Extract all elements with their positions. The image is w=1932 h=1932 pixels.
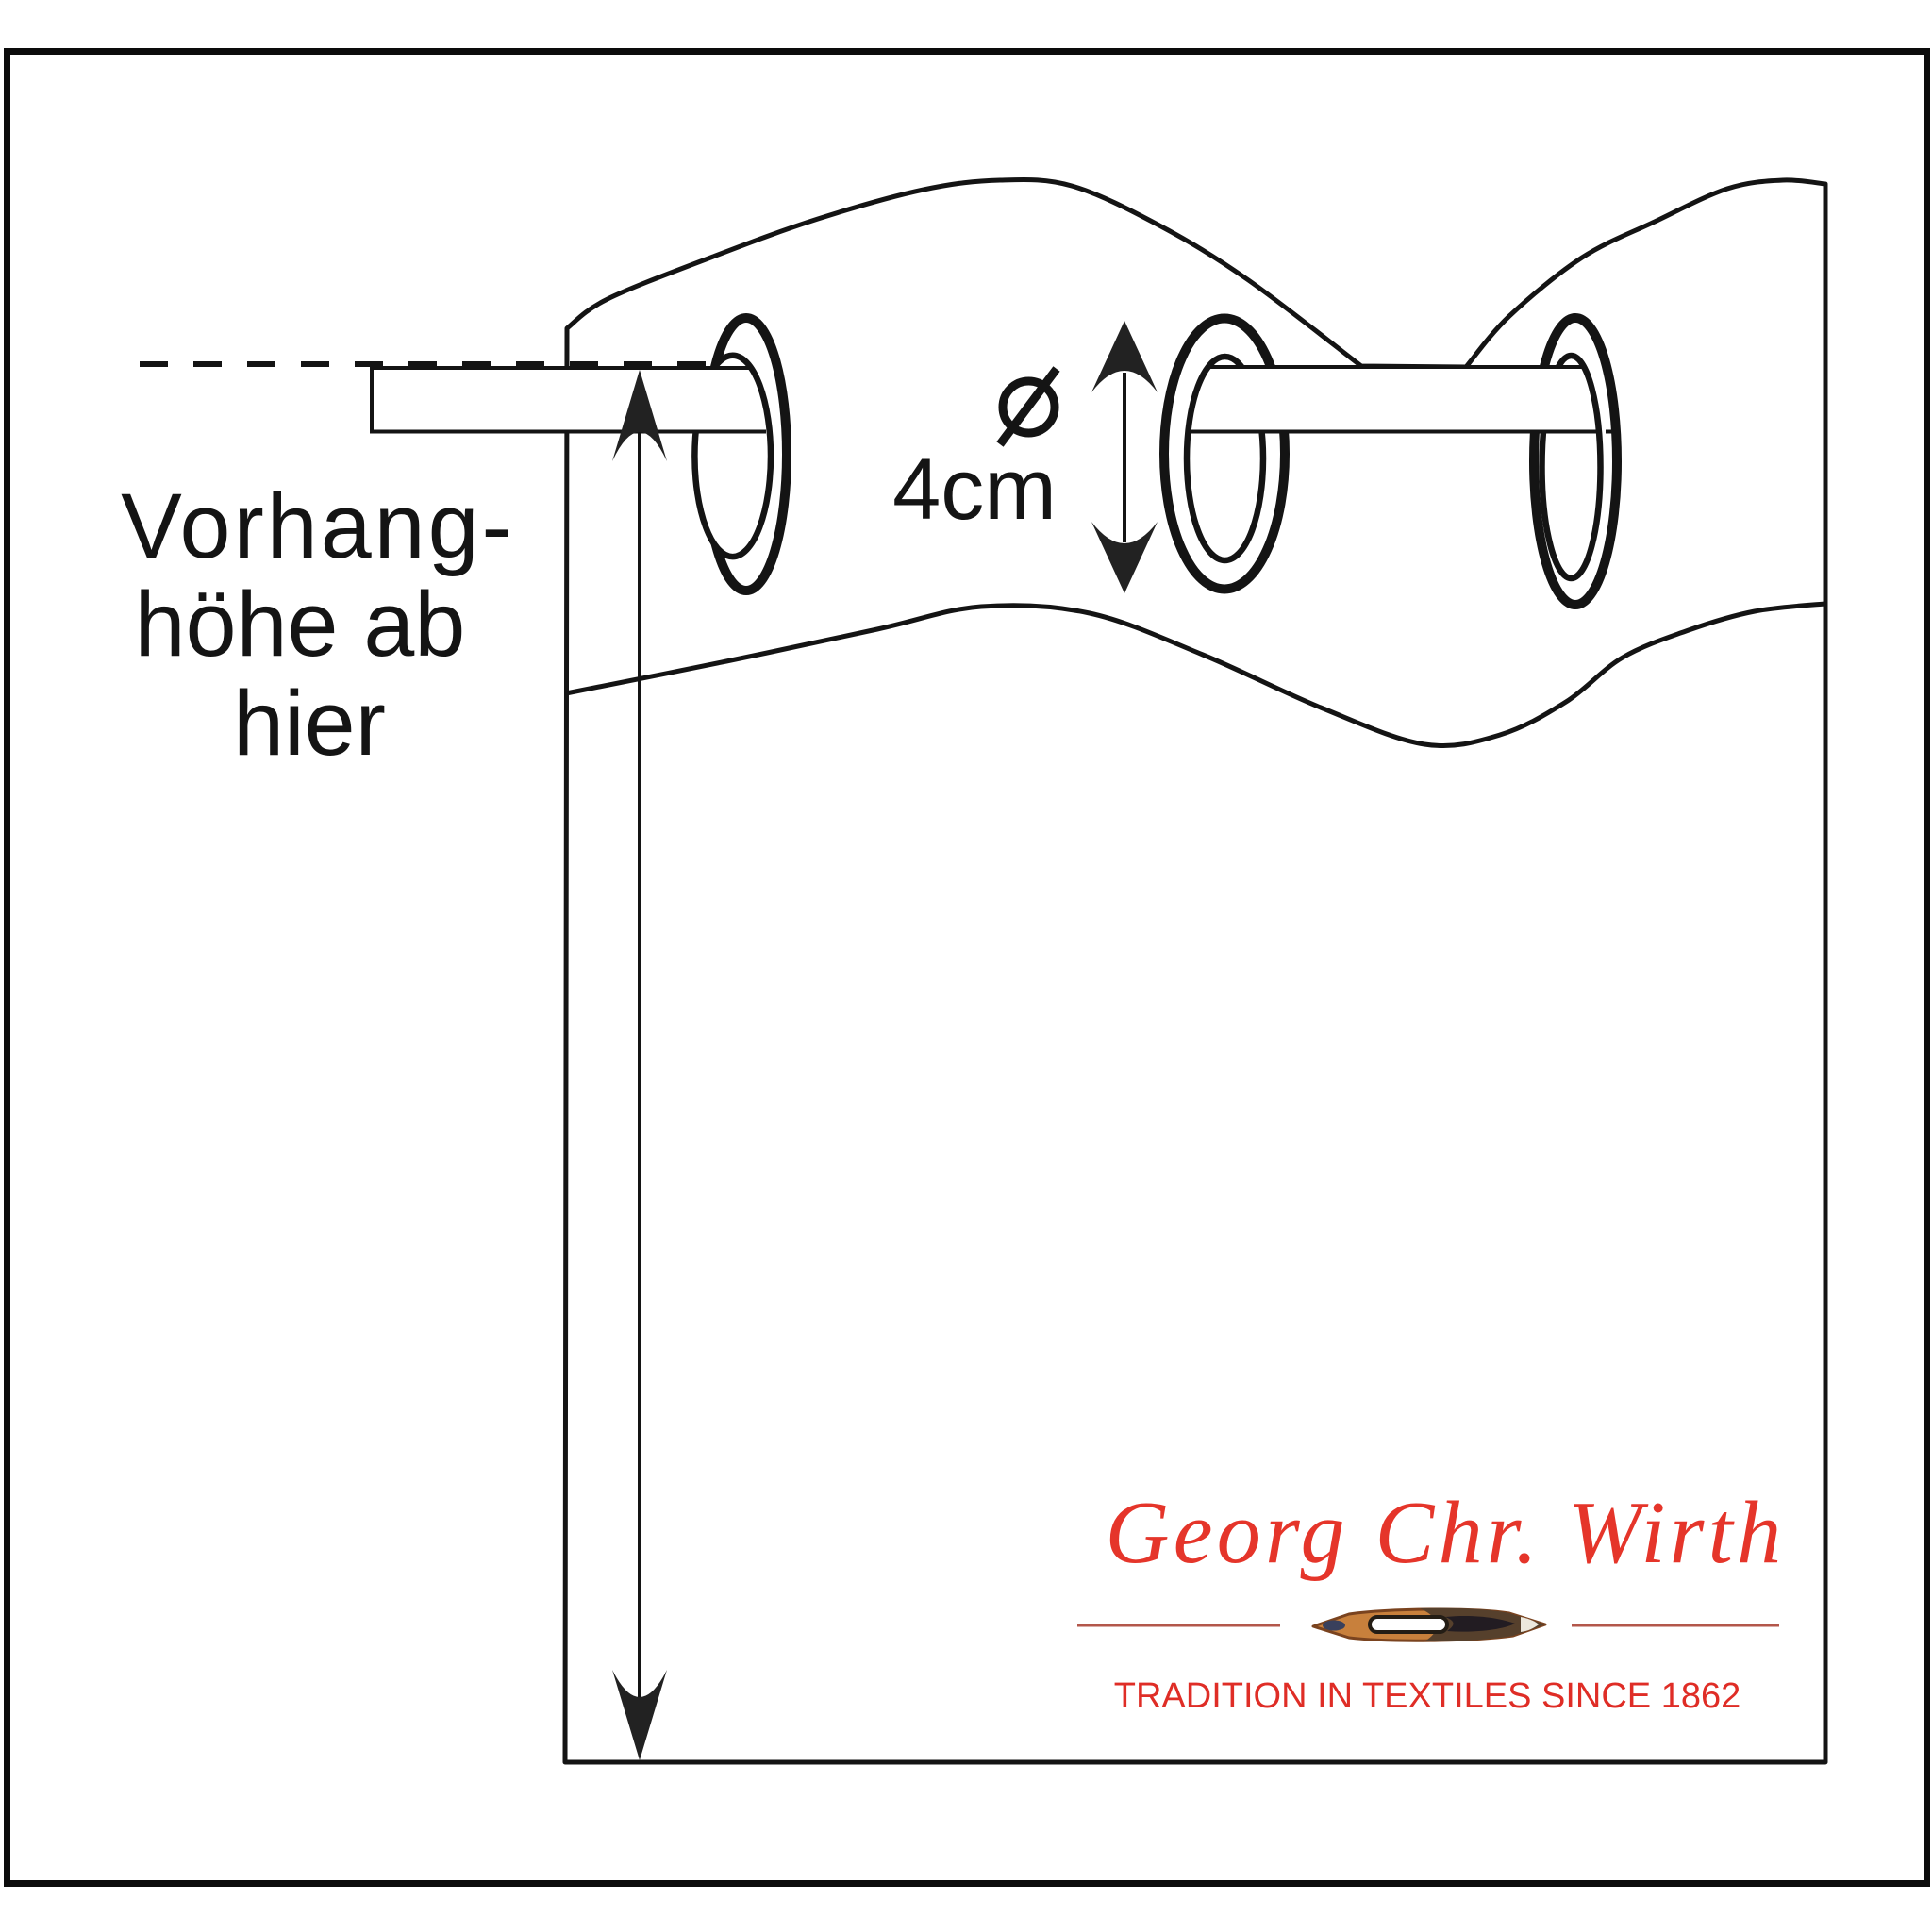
svg-text:TRADITION IN TEXTILES SINCE 18: TRADITION IN TEXTILES SINCE 1862 (1114, 1676, 1740, 1716)
svg-text:Georg Chr. Wirth: Georg Chr. Wirth (1106, 1484, 1786, 1582)
svg-text:hier: hier (233, 672, 386, 774)
svg-text:4cm: 4cm (892, 441, 1057, 538)
svg-text:Vorhang-: Vorhang- (121, 475, 515, 577)
svg-text:höhe ab: höhe ab (135, 573, 466, 675)
